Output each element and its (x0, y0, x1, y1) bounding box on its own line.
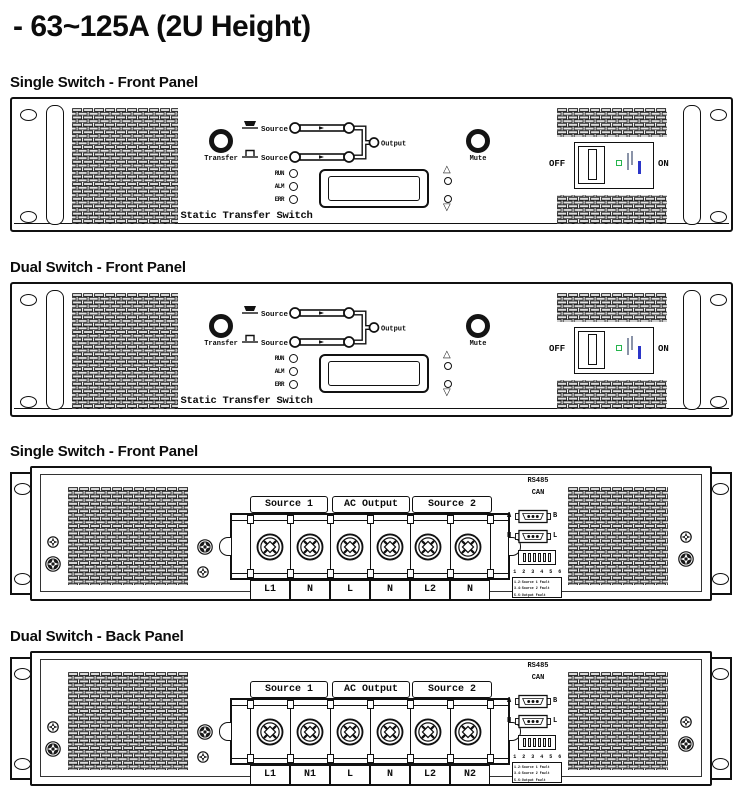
rack-screw-hole (710, 109, 727, 121)
vent-grille-left (68, 487, 188, 585)
clamp-tab (487, 700, 494, 709)
screw-terminal (454, 718, 482, 746)
source1-node (290, 123, 300, 133)
group-header-source2: Source 2 (412, 681, 492, 698)
legend-row: 5.6:Output Fault (514, 592, 560, 598)
clamp-tab (487, 515, 494, 524)
ear-screw-hole (712, 668, 729, 680)
transfer-label: Transfer (200, 155, 242, 163)
vent-grille-left (72, 293, 178, 409)
panel-4-dual-back: Source 1 AC Output Source 2 (10, 651, 733, 786)
cable-notch-left (219, 537, 231, 556)
switch1-node (344, 308, 354, 318)
clamp-tab (327, 754, 334, 763)
clamp-tab (327, 515, 334, 524)
clamp-tab (367, 700, 374, 709)
rack-screw-hole (20, 396, 37, 408)
lcd-screen (328, 176, 420, 201)
run-led-label: RUN (258, 355, 284, 362)
chassis-screw-small (680, 531, 692, 543)
source2-icon (242, 336, 258, 343)
run-led (289, 354, 298, 363)
breaker-rating-print (627, 153, 629, 170)
dip-numbers: 1 2 3 4 5 6 (510, 754, 566, 760)
terminal-label: L2 (410, 580, 450, 600)
group-header-ac-output: AC Output (332, 496, 410, 513)
output-node (370, 138, 379, 147)
ear-screw-hole (14, 573, 31, 585)
output-node (370, 323, 379, 332)
port-h-label: H (507, 717, 511, 725)
output-label: Output (381, 326, 406, 334)
breaker-rating-print (627, 338, 629, 355)
port-a-label: A (507, 697, 511, 705)
rs485-can-port[interactable] (515, 694, 551, 709)
section-label-3: Single Switch - Front Panel (10, 443, 198, 460)
breaker-rating-print (631, 336, 633, 350)
source1-icon (242, 306, 258, 313)
ear-screw-hole (712, 573, 729, 585)
screw-terminal (256, 533, 284, 561)
ear-screw-hole (712, 758, 729, 770)
run-led (289, 169, 298, 178)
clamp-tab (287, 515, 294, 524)
rack-handle-bar (683, 290, 701, 410)
breaker-paddle[interactable] (578, 331, 605, 369)
source2-node (290, 337, 300, 347)
port-l-label: L (553, 532, 557, 540)
screw-terminal (336, 718, 364, 746)
screw-terminal (256, 718, 284, 746)
port-b-label: B (553, 697, 557, 705)
vent-grille-right (568, 487, 668, 585)
alm-led-label: ALM (258, 368, 284, 375)
front-panel: Transfer Source 1 Source 2 (10, 282, 733, 417)
source1-icon (242, 121, 258, 128)
ear-screw-hole (14, 483, 31, 495)
transfer-label: Transfer (200, 340, 242, 348)
scroll-down-icon[interactable]: ▽ (443, 203, 451, 213)
vent-grille-left (72, 108, 178, 224)
breaker-marker (638, 161, 641, 174)
alm-led (289, 182, 298, 191)
ear-screw-hole (14, 758, 31, 770)
chassis-screw-large (45, 741, 61, 757)
chassis-screw-large (678, 551, 694, 567)
clamp-tab (487, 569, 494, 578)
breaker-paddle-slot (588, 149, 597, 180)
terminal-label: L (330, 580, 370, 600)
front-panel: Transfer Source 1 Source 2 (10, 97, 733, 232)
clamp-tab (407, 700, 414, 709)
breaker-paddle[interactable] (578, 146, 605, 184)
screw-terminal (376, 533, 404, 561)
clamp-tab (247, 700, 254, 709)
rack-screw-hole (20, 109, 37, 121)
clamp-tab (447, 700, 454, 709)
chassis-screw-large (678, 736, 694, 752)
clamp-tab (287, 569, 294, 578)
dip-switch[interactable] (518, 550, 556, 565)
chassis-screw-small (197, 751, 209, 763)
clamp-tab (447, 515, 454, 524)
group-header-source1: Source 1 (250, 681, 328, 698)
clamp-tab (327, 700, 334, 709)
scroll-up-button[interactable] (444, 177, 452, 185)
mute-button[interactable] (466, 129, 490, 153)
scroll-up-button[interactable] (444, 362, 452, 370)
vent-grille-right (568, 672, 668, 770)
source2-node (290, 152, 300, 162)
transfer-button[interactable] (209, 314, 233, 338)
screw-terminal (376, 718, 404, 746)
breaker-rating-print (631, 151, 633, 165)
breaker-off-label: OFF (549, 344, 565, 354)
clamp-tab (287, 700, 294, 709)
err-led (289, 195, 298, 204)
rack-screw-hole (710, 211, 727, 223)
rack-screw-hole (20, 294, 37, 306)
lcd-screen (328, 361, 420, 386)
clamp-tab (487, 754, 494, 763)
breaker-status-led (616, 160, 622, 166)
clamp-tab (367, 754, 374, 763)
terminal-label: N (370, 580, 410, 600)
clamp-tab (247, 569, 254, 578)
back-panel: Source 1 AC Output Source 2 (10, 466, 733, 601)
back-panel: Source 1 AC Output Source 2 (10, 651, 733, 786)
chassis-screw-large (197, 724, 213, 740)
breaker-status-led (616, 345, 622, 351)
cable-notch-left (219, 722, 231, 741)
dry-contact-legend: 1.2:Source 1 Fault 3.4:Source 2 Fault 5.… (512, 762, 562, 783)
screw-terminal (454, 533, 482, 561)
rack-handle-bar (46, 290, 64, 410)
clamp-tab (407, 754, 414, 763)
ear-screw-hole (712, 483, 729, 495)
dry-contact-legend: 1.2:Source 1 Fault 3.4:Source 2 Fault 5.… (512, 577, 562, 598)
switch2-node (344, 337, 354, 347)
clamp-tab (367, 515, 374, 524)
section-label-1: Single Switch - Front Panel (10, 74, 198, 91)
mute-button[interactable] (466, 314, 490, 338)
port-a-label: A (507, 512, 511, 520)
terminal-label: L2 (410, 765, 450, 785)
page-title: - 63~125A (2U Height) (13, 10, 311, 44)
section-label-4: Dual Switch - Back Panel (10, 628, 184, 645)
breaker-on-label: ON (658, 344, 669, 354)
rack-screw-hole (710, 396, 727, 408)
can-label: CAN (518, 674, 558, 682)
dip-switch[interactable] (518, 735, 556, 750)
screw-terminal (336, 533, 364, 561)
clamp-tab (367, 569, 374, 578)
ear-screw-hole (14, 668, 31, 680)
section-label-2: Dual Switch - Front Panel (10, 259, 186, 276)
err-led-label: ERR (258, 381, 284, 388)
source2-icon (242, 151, 258, 158)
product-diagram-page: - 63~125A (2U Height) Single Switch - Fr… (0, 0, 742, 802)
power-path-mimic: Source 1 Source 2 Output (237, 296, 437, 360)
output-label: Output (381, 141, 406, 149)
clamp-tab (247, 754, 254, 763)
screw-terminal (414, 533, 442, 561)
clamp-tab (287, 754, 294, 763)
alm-led-label: ALM (258, 183, 284, 190)
breaker-off-label: OFF (549, 159, 565, 169)
mute-label: Mute (464, 155, 492, 163)
chassis-screw-large (45, 556, 61, 572)
rack-handle-bar (46, 105, 64, 225)
rs485-can-port[interactable] (515, 529, 551, 544)
clamp-tab (247, 515, 254, 524)
breaker-marker (638, 346, 641, 359)
port-h-label: H (507, 532, 511, 540)
chassis-screw-small (47, 536, 59, 548)
group-header-ac-output: AC Output (332, 681, 410, 698)
rack-handle-bar (683, 105, 701, 225)
screw-terminal (296, 718, 324, 746)
legend-row: 5.6:Output Fault (514, 777, 560, 783)
device-name: Static Transfer Switch (174, 395, 319, 407)
port-b-label: B (553, 512, 557, 520)
group-header-source1: Source 1 (250, 496, 328, 513)
err-led-label: ERR (258, 196, 284, 203)
clamp-tab (327, 569, 334, 578)
panel-3-single-back: Source 1 AC Output Source 2 (10, 466, 733, 601)
group-header-source2: Source 2 (412, 496, 492, 513)
rack-screw-hole (20, 211, 37, 223)
rs485-can-port[interactable] (515, 714, 551, 729)
vent-grille-left (68, 672, 188, 770)
rack-screw-hole (710, 294, 727, 306)
clamp-tab (447, 754, 454, 763)
rs485-label: RS485 (518, 662, 558, 670)
clamp-tab (407, 569, 414, 578)
panel-1-single-front: Transfer Source 1 Source 2 (10, 97, 733, 232)
scroll-down-icon[interactable]: ▽ (443, 388, 451, 398)
terminal-label: L (330, 765, 370, 785)
rs485-label: RS485 (518, 477, 558, 485)
terminal-label: L1 (250, 765, 290, 785)
err-led (289, 380, 298, 389)
chassis-screw-small (47, 721, 59, 733)
port-l-label: L (553, 717, 557, 725)
switch1-node (344, 123, 354, 133)
dip-numbers: 1 2 3 4 5 6 (510, 569, 566, 575)
alm-led (289, 367, 298, 376)
mute-label: Mute (464, 340, 492, 348)
device-name: Static Transfer Switch (174, 210, 319, 222)
circuit-breaker[interactable] (574, 327, 654, 374)
power-path-mimic: Source 1 Source 2 Output (237, 111, 437, 175)
transfer-button[interactable] (209, 129, 233, 153)
clamp-tab (407, 515, 414, 524)
terminal-label: N (290, 580, 330, 600)
circuit-breaker[interactable] (574, 142, 654, 189)
terminal-label: L1 (250, 580, 290, 600)
scroll-up-icon[interactable]: △ (443, 165, 451, 175)
chassis-screw-small (680, 716, 692, 728)
clamp-tab (447, 569, 454, 578)
switch2-node (344, 152, 354, 162)
screw-terminal (414, 718, 442, 746)
scroll-up-icon[interactable]: △ (443, 350, 451, 360)
rs485-can-port[interactable] (515, 509, 551, 524)
terminal-label: N2 (450, 765, 490, 785)
breaker-on-label: ON (658, 159, 669, 169)
source1-node (290, 308, 300, 318)
can-label: CAN (518, 489, 558, 497)
terminal-label: N1 (290, 765, 330, 785)
chassis-screw-small (197, 566, 209, 578)
terminal-label: N (370, 765, 410, 785)
panel-2-dual-front: Transfer Source 1 Source 2 (10, 282, 733, 417)
run-led-label: RUN (258, 170, 284, 177)
terminal-label: N (450, 580, 490, 600)
screw-terminal (296, 533, 324, 561)
breaker-paddle-slot (588, 334, 597, 365)
chassis-screw-large (197, 539, 213, 555)
